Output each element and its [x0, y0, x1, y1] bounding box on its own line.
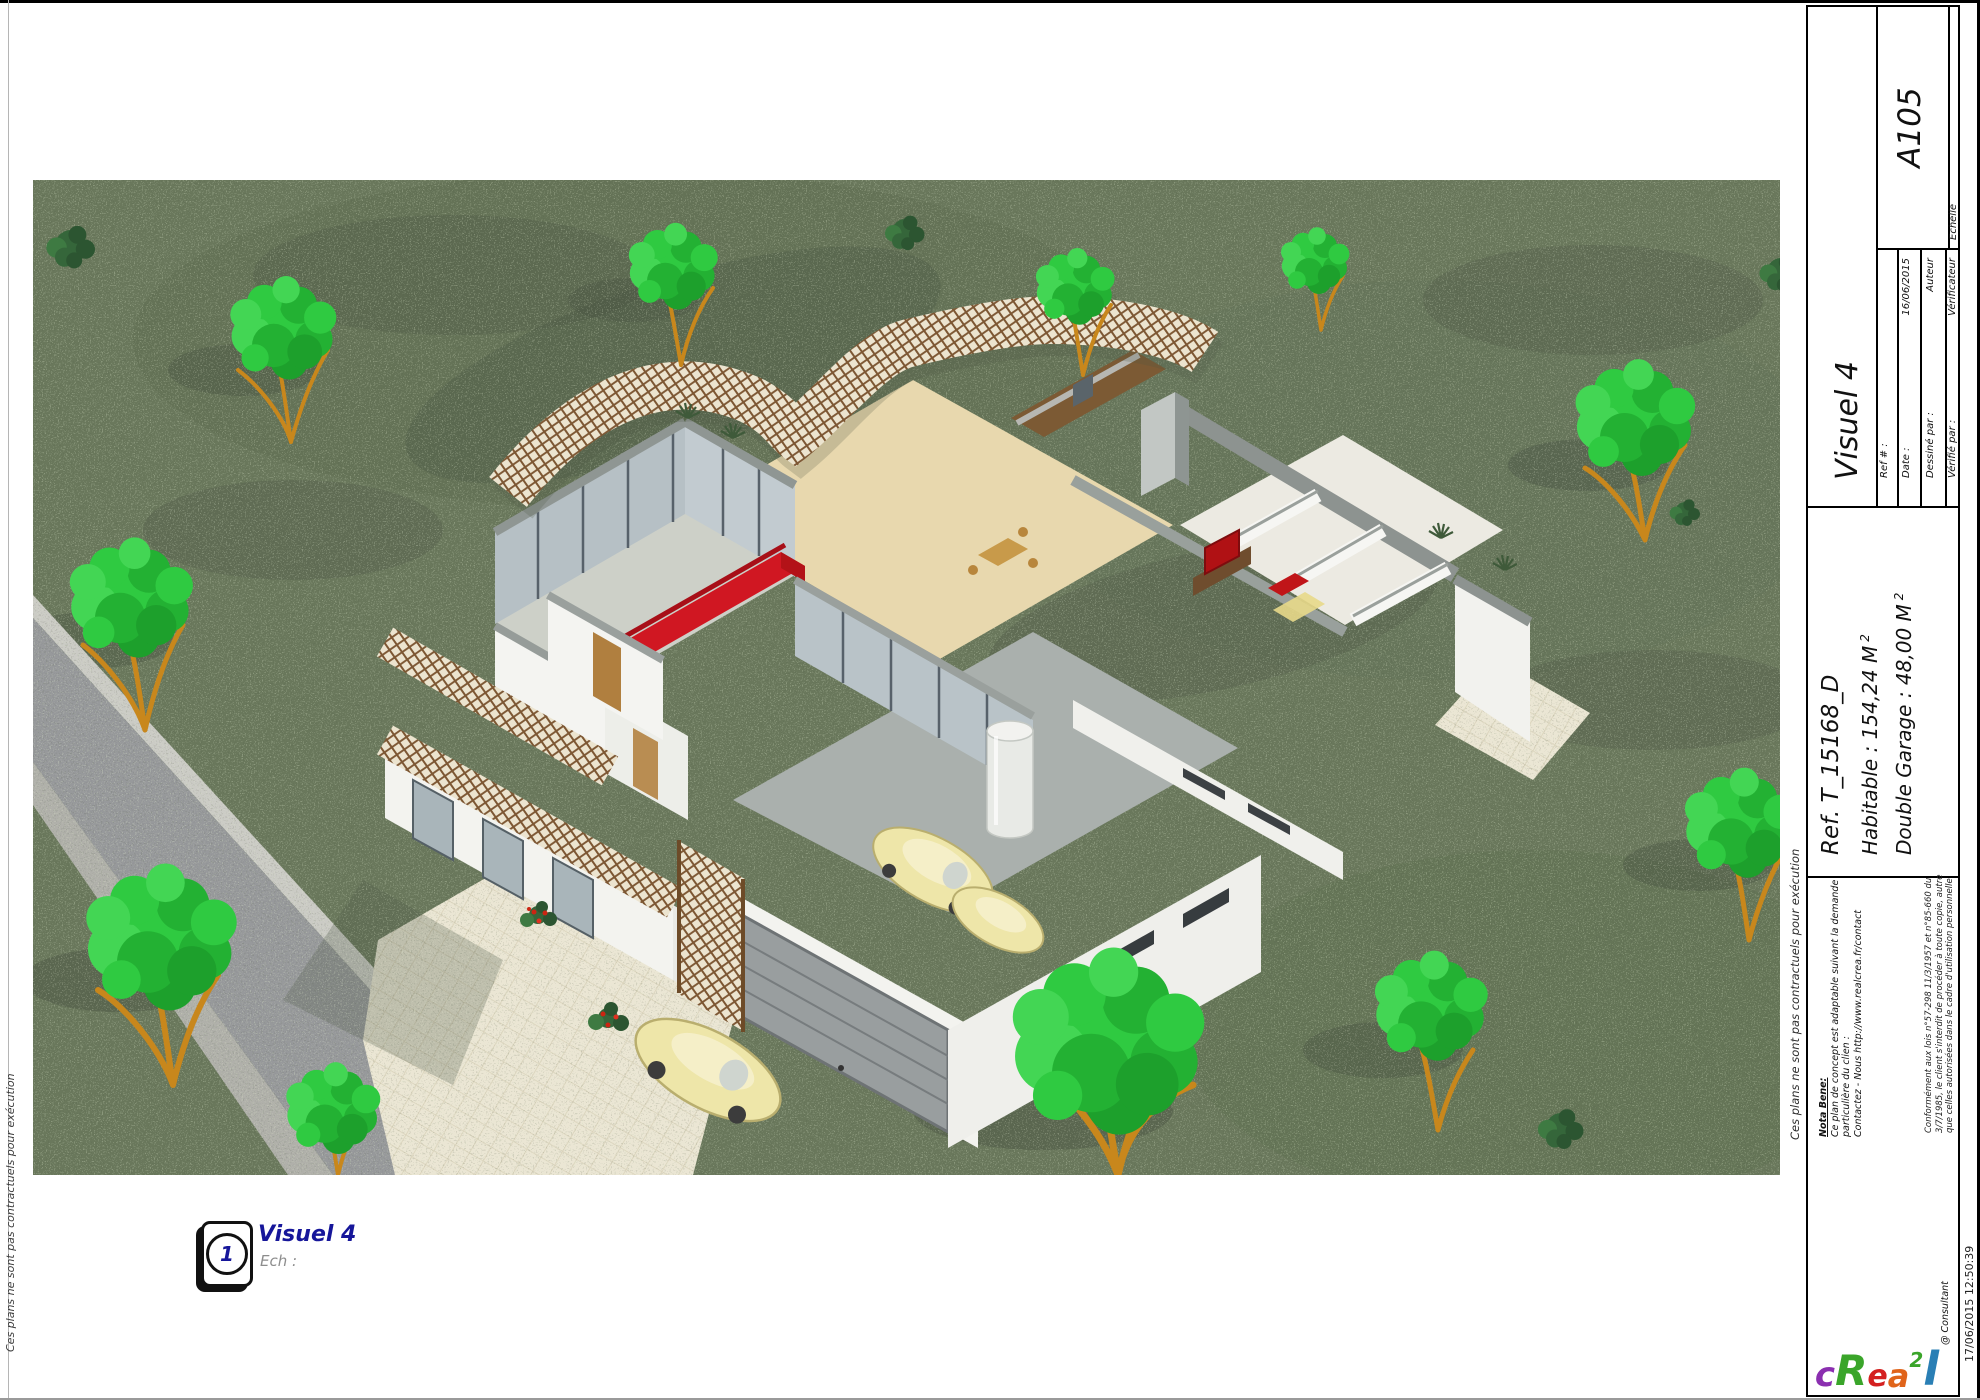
- habitable-sup: 2: [1858, 634, 1872, 642]
- project-reference: Ref. T_15168_D: [1818, 675, 1844, 855]
- field-label-drawnby: Dessiné par :: [1925, 412, 1936, 478]
- garage-sup: 2: [1892, 593, 1906, 601]
- divider: [1897, 250, 1899, 508]
- nota-line: Ce plan de concept est adaptable suivant…: [1830, 880, 1842, 1137]
- figure-number: 1: [220, 1242, 234, 1266]
- chimney: [1141, 392, 1189, 496]
- logo-letter: R: [1835, 1350, 1867, 1392]
- legal-line: que celles autorisées dans le cadre d'ut…: [1945, 875, 1956, 1133]
- logo-letter: e: [1867, 1362, 1887, 1392]
- field-value-drawnby: Auteur: [1925, 258, 1936, 355]
- nota-line: Contactez - Nous http://www.realcrea.fr/…: [1853, 880, 1865, 1137]
- crea2l-logo: cRea2l: [1812, 1336, 1942, 1392]
- water-heater: [987, 721, 1033, 838]
- figure-marker: 1: [201, 1221, 253, 1287]
- logo-letter: c: [1815, 1358, 1835, 1392]
- divider: [1876, 5, 1878, 508]
- habitable-area: Habitable : 154,24 M2: [1858, 634, 1882, 855]
- garage-area: Double Garage : 48,00 M2: [1892, 593, 1916, 855]
- field-value-date: 16/06/2015: [1901, 258, 1912, 355]
- sheet-code: A105: [1892, 5, 1928, 250]
- figure-number-circle: 1: [206, 1233, 248, 1275]
- disclaimer-left: Ces plans ne sont pas contractuels pour …: [4, 1073, 17, 1352]
- disclaimer-right: Ces plans ne sont pas contractuels pour …: [1788, 849, 1802, 1140]
- logo-letter: a: [1888, 1360, 1910, 1392]
- view-title: Visuel 4: [1830, 361, 1865, 480]
- house-rendering: [33, 180, 1780, 1175]
- field-value-checkedby: Vérificateur: [1947, 258, 1958, 375]
- scale-label: Echelle: [1948, 204, 1959, 240]
- legal-line: Conformément aux lois n°57-298 11/3/1957…: [1924, 875, 1935, 1133]
- divider: [1920, 250, 1922, 508]
- field-label-date: Date :: [1901, 448, 1912, 478]
- field-label-checkedby: Vérifié par :: [1947, 420, 1958, 478]
- plot-timestamp: 17/06/2015 12:50:39: [1963, 1246, 1976, 1362]
- logo-letter-sup: 2: [1909, 1350, 1923, 1370]
- title-block: Nota Bene: Ce plan de concept est adapta…: [1806, 5, 1960, 1397]
- divider: [1808, 506, 1958, 508]
- habitable-text: Habitable : 154,24 M: [1858, 646, 1882, 855]
- legal-line: 3/7/1985, le client s'interdit de procéd…: [1935, 875, 1946, 1133]
- nota-line: particulière du clien :: [1841, 880, 1853, 1137]
- logo-letter: l: [1923, 1346, 1939, 1392]
- plan-sheet: Ces plans ne sont pas contractuels pour …: [0, 0, 1980, 1400]
- garage-text: Double Garage : 48,00 M: [1892, 604, 1916, 855]
- figure-scale-label: Ech :: [260, 1252, 297, 1270]
- nota-bene-title: Nota Bene:: [1818, 880, 1830, 1137]
- figure-title: Visuel 4: [258, 1222, 356, 1247]
- page-border-top: [0, 0, 1980, 3]
- field-label-ref: Ref # :: [1879, 443, 1890, 478]
